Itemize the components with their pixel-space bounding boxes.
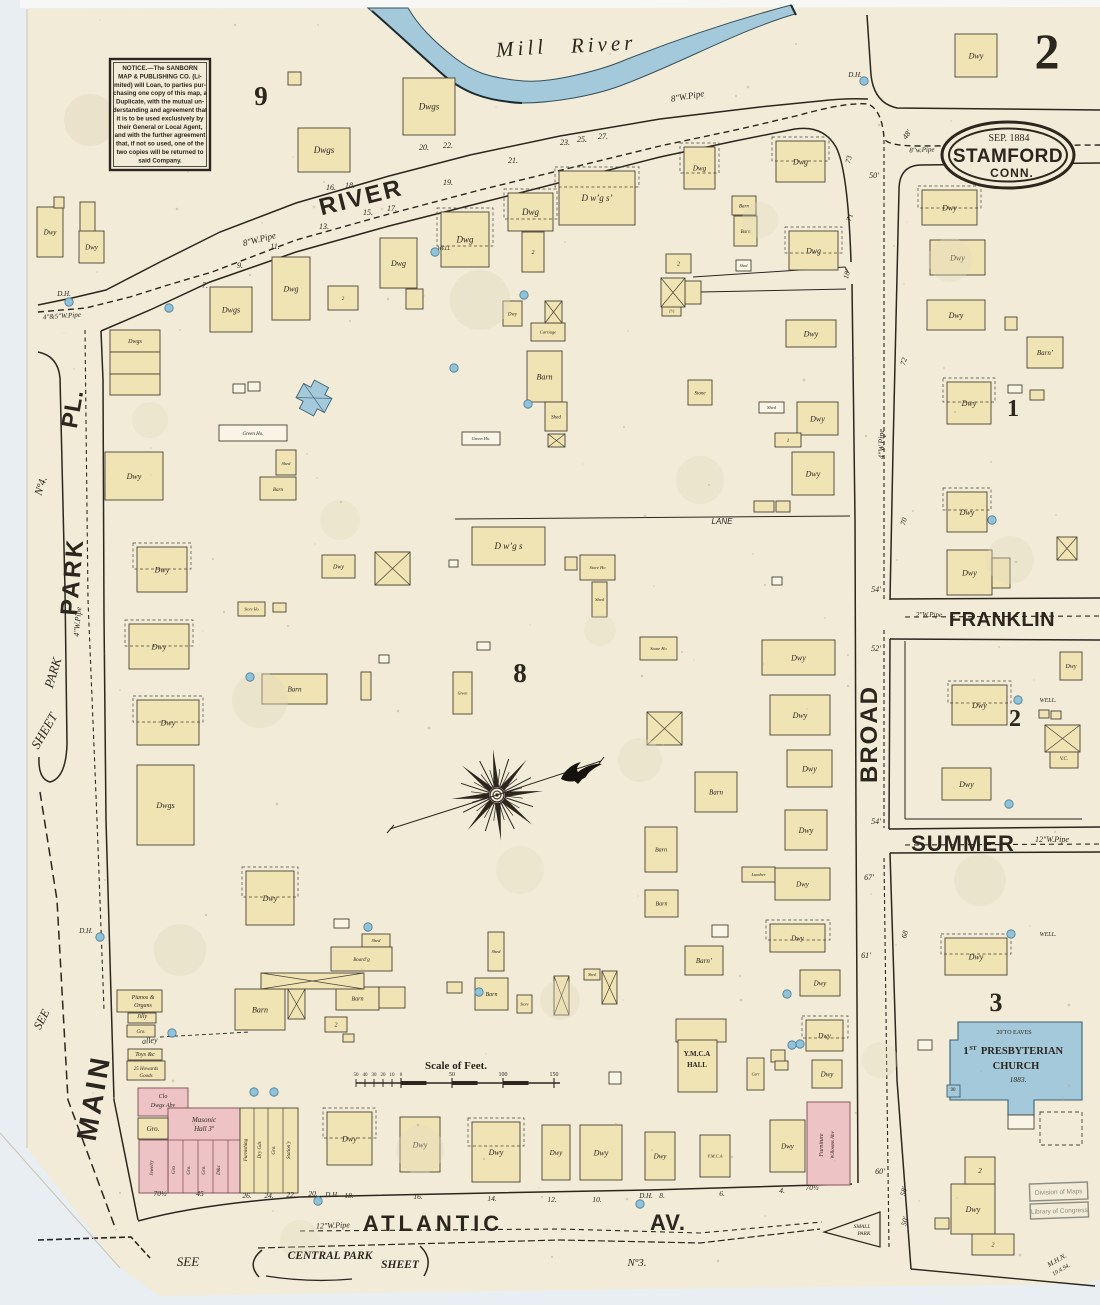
svg-text:Dwy: Dwy xyxy=(262,894,278,903)
svg-text:Dwy: Dwy xyxy=(820,1070,835,1078)
svg-text:NOTICE.—The SANBORN: NOTICE.—The SANBORN xyxy=(122,65,198,72)
svg-text:Dwy: Dwy xyxy=(790,934,805,942)
svg-text:17.: 17. xyxy=(387,204,397,213)
svg-text:Dwy: Dwy xyxy=(971,701,987,710)
svg-text:4″W.Pipe: 4″W.Pipe xyxy=(877,429,886,459)
svg-text:18.: 18. xyxy=(345,181,355,190)
svg-text:River: River xyxy=(569,30,637,57)
svg-text:Masonic: Masonic xyxy=(191,1116,217,1124)
svg-text:Barn’: Barn’ xyxy=(696,957,713,965)
svg-text:D.H.: D.H. xyxy=(56,290,71,298)
svg-text:Dwy: Dwy xyxy=(958,780,974,789)
svg-text:Dwy: Dwy xyxy=(795,880,810,888)
svg-text:D&c: D&c xyxy=(217,1164,222,1176)
svg-text:3: 3 xyxy=(990,988,1003,1017)
svg-text:Dwy: Dwy xyxy=(961,399,977,408)
svg-text:Shed: Shed xyxy=(551,415,561,420)
svg-text:Organs: Organs xyxy=(134,1003,152,1009)
svg-text:their General or Local Agent,: their General or Local Agent, xyxy=(118,124,203,131)
svg-text:Dwg: Dwg xyxy=(792,157,808,166)
svg-text:Dwgs: Dwgs xyxy=(155,801,174,810)
svg-text:Dwg: Dwg xyxy=(455,235,474,245)
svg-text:Store Ho: Store Ho xyxy=(590,565,607,570)
svg-text:Y.M.C.A: Y.M.C.A xyxy=(684,1050,710,1058)
svg-text:2: 2 xyxy=(1035,23,1060,79)
svg-text:50: 50 xyxy=(354,1073,360,1078)
svg-text:Dwy: Dwy xyxy=(507,312,518,317)
svg-text:61′: 61′ xyxy=(861,951,871,960)
svg-text:Carriage: Carriage xyxy=(540,330,557,335)
svg-text:20′TO EAVES: 20′TO EAVES xyxy=(996,1030,1031,1036)
svg-text:10: 10 xyxy=(390,1073,396,1078)
svg-text:Dwy: Dwy xyxy=(160,718,176,727)
svg-text:2″W.Pipe: 2″W.Pipe xyxy=(916,611,942,619)
svg-text:23.: 23. xyxy=(560,138,570,147)
svg-text:Dwy: Dwy xyxy=(1065,664,1077,670)
svg-text:25.: 25. xyxy=(577,135,587,144)
svg-text:Hall 3º: Hall 3º xyxy=(193,1125,215,1133)
svg-text:Dwy: Dwy xyxy=(801,764,817,773)
svg-text:16.: 16. xyxy=(326,183,336,192)
svg-text:Scale of Feet.: Scale of Feet. xyxy=(425,1060,487,1072)
svg-text:Dwy: Dwy xyxy=(653,1152,668,1160)
svg-text:4.: 4. xyxy=(779,1186,785,1195)
svg-text:Gro.: Gro. xyxy=(147,1125,160,1133)
svg-text:54′: 54′ xyxy=(871,585,881,594)
svg-text:Gro.: Gro. xyxy=(187,1165,192,1174)
svg-text:STAMFORD: STAMFORD xyxy=(953,146,1063,167)
svg-text:Dwy: Dwy xyxy=(780,1142,795,1150)
svg-text:Dwy: Dwy xyxy=(965,1205,981,1214)
svg-text:1½: 1½ xyxy=(669,309,675,314)
svg-text:Pianos &: Pianos & xyxy=(131,995,155,1001)
svg-text:Gro.: Gro. xyxy=(202,1165,207,1174)
svg-text:Nº3.: Nº3. xyxy=(627,1257,647,1269)
svg-text:said Company.: said Company. xyxy=(138,157,182,164)
svg-text:Dwy: Dwy xyxy=(341,1134,357,1143)
svg-text:Clo: Clo xyxy=(159,1094,168,1100)
svg-text:AV.: AV. xyxy=(650,1210,686,1235)
svg-text:Dwy: Dwy xyxy=(549,1149,564,1157)
svg-text:Dwgs: Dwgs xyxy=(418,102,440,112)
svg-text:Green: Green xyxy=(458,690,468,695)
svg-text:HALL: HALL xyxy=(687,1061,707,1069)
svg-text:Store: Store xyxy=(520,1001,529,1006)
svg-text:WELL.: WELL. xyxy=(1040,698,1057,704)
svg-text:26.: 26. xyxy=(242,1191,252,1200)
svg-text:Dwy: Dwy xyxy=(813,979,828,987)
svg-text:8.: 8. xyxy=(659,1191,665,1200)
svg-text:Lumber: Lumber xyxy=(750,872,765,877)
svg-text:Barn: Barn xyxy=(537,372,553,381)
svg-text:Store Ho: Store Ho xyxy=(244,606,258,611)
svg-text:12.: 12. xyxy=(547,1195,557,1204)
svg-text:SЕP. 1884: SЕP. 1884 xyxy=(988,133,1029,144)
svg-text:SMALL: SMALL xyxy=(854,1224,871,1230)
svg-text:Dwgs: Dwgs xyxy=(221,305,240,314)
svg-text:W.Rooms Abv: W.Rooms Abv xyxy=(831,1130,836,1158)
svg-text:1883.: 1883. xyxy=(1010,1075,1027,1084)
svg-text:Barn: Barn xyxy=(273,488,284,493)
svg-text:Green Ho.: Green Ho. xyxy=(472,436,491,441)
svg-text:Dwg: Dwg xyxy=(692,164,707,172)
svg-text:PARK: PARK xyxy=(856,1231,870,1237)
svg-text:Dwgs: Dwgs xyxy=(313,145,335,155)
svg-text:Shed: Shed xyxy=(282,461,291,466)
svg-text:Shed: Shed xyxy=(492,949,501,954)
svg-text:Dwy: Dwy xyxy=(84,243,99,251)
svg-text:54′: 54′ xyxy=(871,817,881,826)
svg-text:24.: 24. xyxy=(264,1191,274,1200)
svg-text:Stone: Stone xyxy=(694,391,706,396)
svg-text:Y.M.C.A: Y.M.C.A xyxy=(708,1154,723,1159)
svg-text:Jewelry: Jewelry xyxy=(150,1159,155,1175)
svg-text:90: 90 xyxy=(951,1088,957,1093)
svg-text:1: 1 xyxy=(1007,396,1019,422)
svg-text:Dwg: Dwg xyxy=(282,284,298,293)
svg-text:8″w.Pipe: 8″w.Pipe xyxy=(909,146,934,155)
svg-text:D.H.: D.H. xyxy=(638,1192,653,1200)
svg-text:50: 50 xyxy=(449,1072,455,1078)
svg-text:Shed: Shed xyxy=(767,405,776,410)
svg-text:WELL: WELL xyxy=(438,247,451,252)
svg-text:Dwg: Dwg xyxy=(521,207,540,217)
svg-text:mited) will Loan, to parties p: mited) will Loan, to parties pur- xyxy=(114,82,206,89)
svg-text:MAP & PUBLISHING CO. (Li-: MAP & PUBLISHING CO. (Li- xyxy=(118,73,202,80)
svg-text:100: 100 xyxy=(499,1072,508,1078)
svg-text:60′: 60′ xyxy=(875,1167,885,1176)
svg-text:Gro.: Gro. xyxy=(272,1145,277,1154)
svg-text:25 Howards: 25 Howards xyxy=(134,1067,158,1072)
svg-text:20: 20 xyxy=(381,1073,387,1078)
svg-text:Barn: Barn xyxy=(288,685,303,693)
svg-text:Dwy: Dwy xyxy=(968,51,984,60)
svg-text:12″W.Pipe: 12″W.Pipe xyxy=(316,1220,351,1230)
svg-text:Carr: Carr xyxy=(752,1071,760,1076)
svg-text:D.H.: D.H. xyxy=(78,927,93,935)
svg-text:Station’y: Station’y xyxy=(287,1140,292,1159)
svg-text:20.: 20. xyxy=(419,143,429,152)
svg-text:D.H.: D.H. xyxy=(324,1191,339,1199)
svg-text:ATLANTIC: ATLANTIC xyxy=(363,1211,503,1236)
svg-text:13.: 13. xyxy=(319,222,329,231)
svg-text:2: 2 xyxy=(1009,706,1021,732)
svg-text:Dwy: Dwy xyxy=(798,826,814,835)
svg-text:9: 9 xyxy=(254,81,268,111)
svg-text:70½: 70½ xyxy=(805,1183,819,1192)
svg-text:Furniture: Furniture xyxy=(819,1133,825,1157)
svg-text:Shed: Shed xyxy=(372,938,381,943)
svg-text:45: 45 xyxy=(196,1189,204,1198)
svg-text:22.: 22. xyxy=(286,1190,296,1199)
svg-text:Gro.: Gro. xyxy=(136,1030,145,1035)
svg-text:Barn’: Barn’ xyxy=(1037,349,1054,357)
svg-text:Barn: Barn xyxy=(252,1005,268,1014)
svg-text:Stone Ho: Stone Ho xyxy=(650,646,667,651)
svg-text:Dwy: Dwy xyxy=(151,642,167,651)
svg-text:CHURCH: CHURCH xyxy=(993,1061,1040,1072)
svg-text:1: 1 xyxy=(787,439,790,444)
svg-text:D w’g s’: D w’g s’ xyxy=(581,193,613,203)
svg-text:50′: 50′ xyxy=(869,171,879,180)
svg-text:2: 2 xyxy=(532,250,535,256)
svg-text:14.: 14. xyxy=(487,1194,497,1203)
svg-text:Barn: Barn xyxy=(655,848,667,854)
svg-text:derstanding and agreement that: derstanding and agreement that xyxy=(113,107,207,114)
svg-text:2: 2 xyxy=(992,1243,995,1249)
svg-text:Jilly: Jilly xyxy=(137,1014,148,1020)
svg-text:LANE: LANE xyxy=(712,517,734,526)
svg-text:Board’g: Board’g xyxy=(353,958,370,963)
svg-text:Dwy: Dwy xyxy=(805,469,821,478)
svg-text:PRESBYTERIAN: PRESBYTERIAN xyxy=(981,1046,1064,1057)
svg-text:Gro: Gro xyxy=(172,1166,177,1174)
svg-text:1: 1 xyxy=(963,1045,969,1057)
svg-text:6.: 6. xyxy=(719,1189,725,1198)
svg-text:Dwg: Dwg xyxy=(390,259,406,268)
svg-text:52′: 52′ xyxy=(871,644,881,653)
svg-text:Barn: Barn xyxy=(709,788,724,796)
svg-text:that, if not so used, one of t: that, if not so used, one of the xyxy=(116,141,205,148)
svg-text:21.: 21. xyxy=(508,156,518,165)
svg-text:Dwy: Dwy xyxy=(126,472,142,481)
svg-text:Shed: Shed xyxy=(588,972,597,977)
svg-text:27.: 27. xyxy=(598,132,608,141)
svg-text:Dwy: Dwy xyxy=(817,1032,832,1040)
svg-text:Dwy: Dwy xyxy=(488,1148,504,1157)
svg-text:Barn: Barn xyxy=(656,902,668,908)
svg-text:alley: alley xyxy=(142,1035,159,1046)
svg-text:Dwy: Dwy xyxy=(948,311,964,320)
svg-text:2: 2 xyxy=(335,1023,338,1029)
svg-text:V.C.: V.C. xyxy=(1060,757,1068,762)
svg-text:9.: 9. xyxy=(237,261,243,270)
svg-text:18.: 18. xyxy=(344,1191,354,1200)
svg-text:8: 8 xyxy=(513,658,527,688)
svg-text:Dwy: Dwy xyxy=(593,1148,609,1157)
svg-text:Dwg: Dwg xyxy=(805,246,821,255)
svg-text:Green Ho.: Green Ho. xyxy=(243,432,264,437)
svg-text:Dwy: Dwy xyxy=(959,508,975,517)
svg-text:Shed: Shed xyxy=(740,263,749,268)
svg-text:WELL.: WELL. xyxy=(1040,932,1057,938)
svg-text:11.: 11. xyxy=(270,242,279,251)
svg-text:SHEET: SHEET xyxy=(381,1259,420,1271)
svg-text:D w’g s: D w’g s xyxy=(493,541,522,551)
svg-text:chasing one copy of this map,: chasing one copy of this map, a xyxy=(113,90,207,97)
svg-text:30: 30 xyxy=(372,1073,378,1078)
svg-text:Shed: Shed xyxy=(595,597,604,602)
svg-text:SUMMER: SUMMER xyxy=(911,831,1015,856)
svg-text:ST: ST xyxy=(969,1046,976,1052)
svg-text:BROAD: BROAD xyxy=(856,685,883,783)
svg-text:2: 2 xyxy=(978,1167,982,1175)
svg-text:Dwy: Dwy xyxy=(332,565,344,571)
svg-text:16.: 16. xyxy=(413,1192,423,1201)
svg-text:Dwy: Dwy xyxy=(961,568,977,577)
svg-text:D.H.: D.H. xyxy=(847,71,862,79)
svg-text:SEE: SEE xyxy=(177,1254,199,1269)
svg-text:10.: 10. xyxy=(592,1195,602,1204)
svg-text:Dry Gds: Dry Gds xyxy=(258,1141,263,1159)
svg-text:two copies will be returned to: two copies will be returned to xyxy=(117,149,204,156)
svg-text:Goods: Goods xyxy=(139,1074,152,1079)
svg-text:Mill: Mill xyxy=(494,34,548,62)
svg-text:and with the further agreement: and with the further agreement xyxy=(115,132,206,139)
svg-text:Duplicate, with the mutual un-: Duplicate, with the mutual un- xyxy=(116,99,204,106)
svg-text:150: 150 xyxy=(550,1072,559,1078)
svg-text:22.: 22. xyxy=(443,141,453,150)
svg-text:Toys &c: Toys &c xyxy=(135,1052,155,1058)
svg-text:CENTRAL PARK: CENTRAL PARK xyxy=(288,1250,374,1262)
svg-text:12″W.Pipe: 12″W.Pipe xyxy=(1035,835,1069,844)
svg-text:15.: 15. xyxy=(363,208,373,217)
svg-text:it is to be used exclusively b: it is to be used exclusively by xyxy=(116,115,204,122)
svg-text:20.: 20. xyxy=(308,1189,318,1198)
svg-text:Dwy: Dwy xyxy=(792,711,808,720)
svg-text:2: 2 xyxy=(677,262,680,268)
svg-text:Furnishing: Furnishing xyxy=(244,1138,249,1162)
svg-text:67′: 67′ xyxy=(864,873,874,882)
svg-text:Dwy: Dwy xyxy=(790,653,806,662)
svg-text:19.: 19. xyxy=(443,178,453,187)
svg-text:70½: 70½ xyxy=(153,1189,167,1198)
svg-text:Barn: Barn xyxy=(486,992,498,998)
svg-text:Dwy: Dwy xyxy=(43,228,58,236)
svg-text:Barn: Barn xyxy=(352,997,364,1003)
svg-text:40: 40 xyxy=(363,1073,369,1078)
svg-text:Dwgs: Dwgs xyxy=(127,339,142,345)
svg-text:Dwy: Dwy xyxy=(154,565,170,574)
svg-text:Dwy: Dwy xyxy=(809,414,825,423)
svg-text:7.: 7. xyxy=(202,281,208,290)
svg-text:Dwy: Dwy xyxy=(968,952,984,961)
svg-text:FRANKLIN: FRANKLIN xyxy=(949,609,1055,631)
svg-text:Dwy: Dwy xyxy=(803,329,819,338)
svg-text:CONN.: CONN. xyxy=(990,166,1034,180)
